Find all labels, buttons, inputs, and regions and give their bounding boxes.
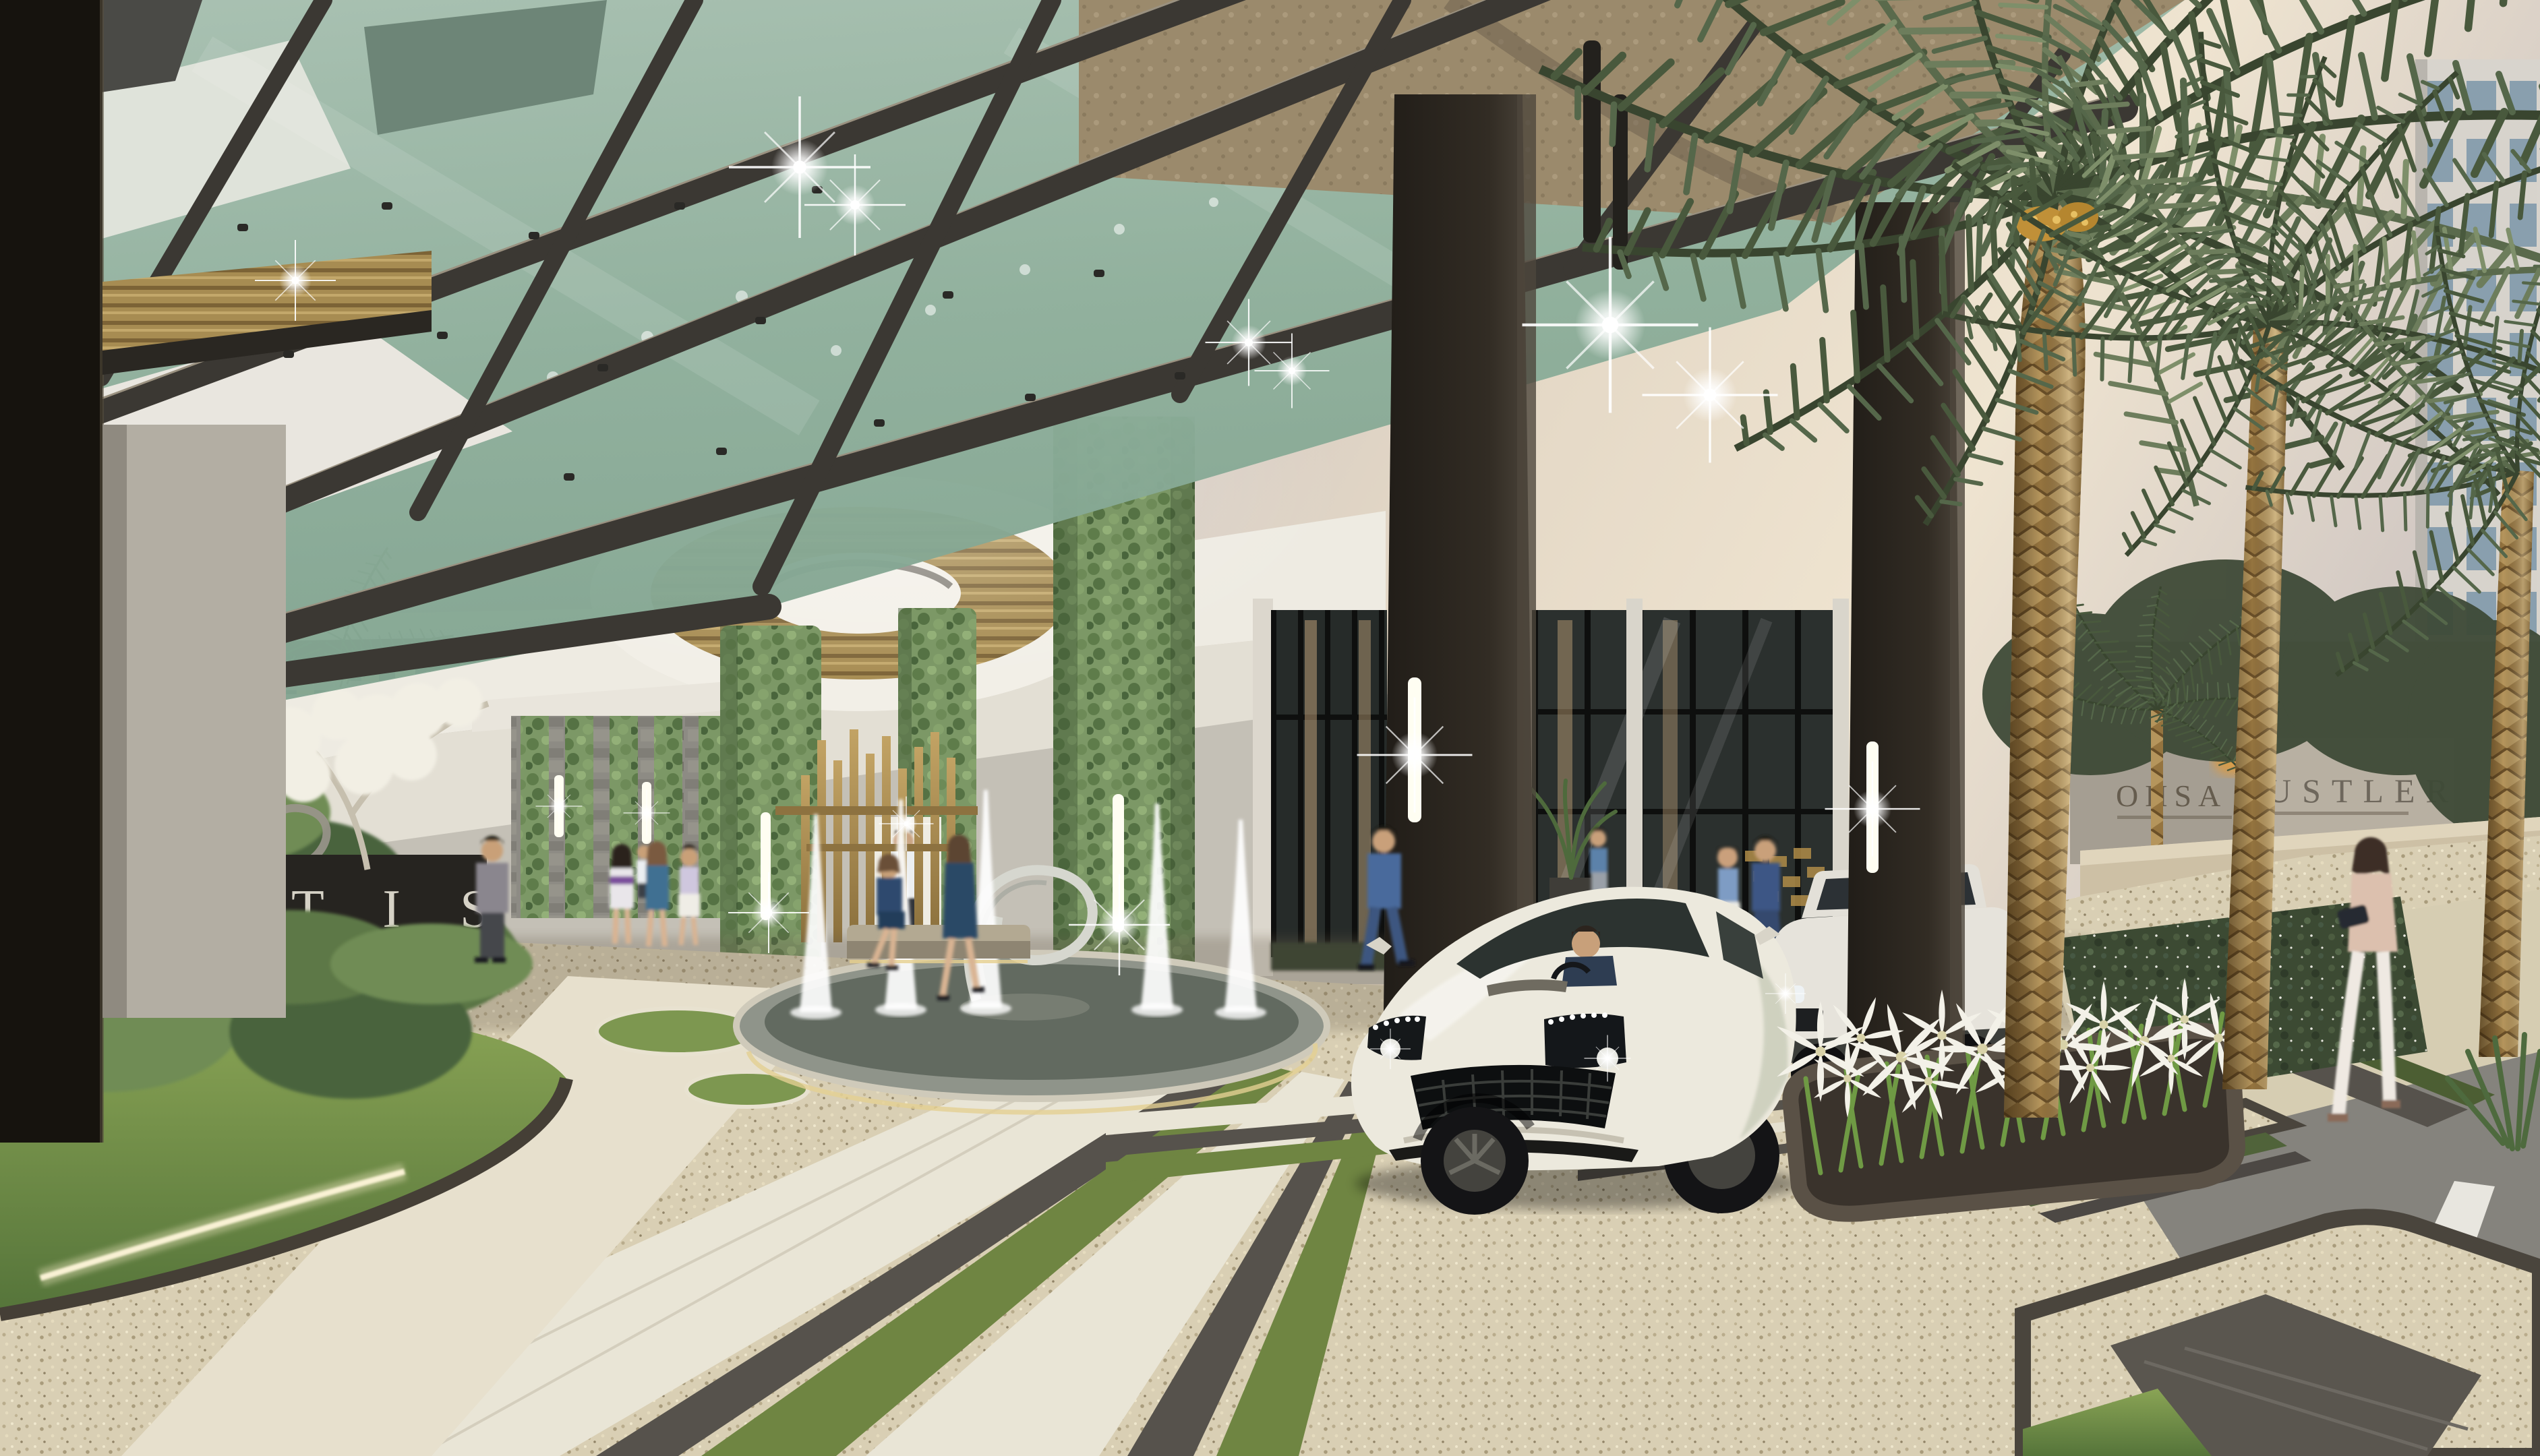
rendered-scene: CE OHSA USTLER xyxy=(0,0,2540,1456)
dark-pillar-main xyxy=(1384,94,1536,1011)
scene-canvas: CE OHSA USTLER xyxy=(0,0,2540,1456)
street-sign-ohsa: OHSA xyxy=(2116,779,2227,813)
gray-wall-panel xyxy=(102,425,286,1018)
